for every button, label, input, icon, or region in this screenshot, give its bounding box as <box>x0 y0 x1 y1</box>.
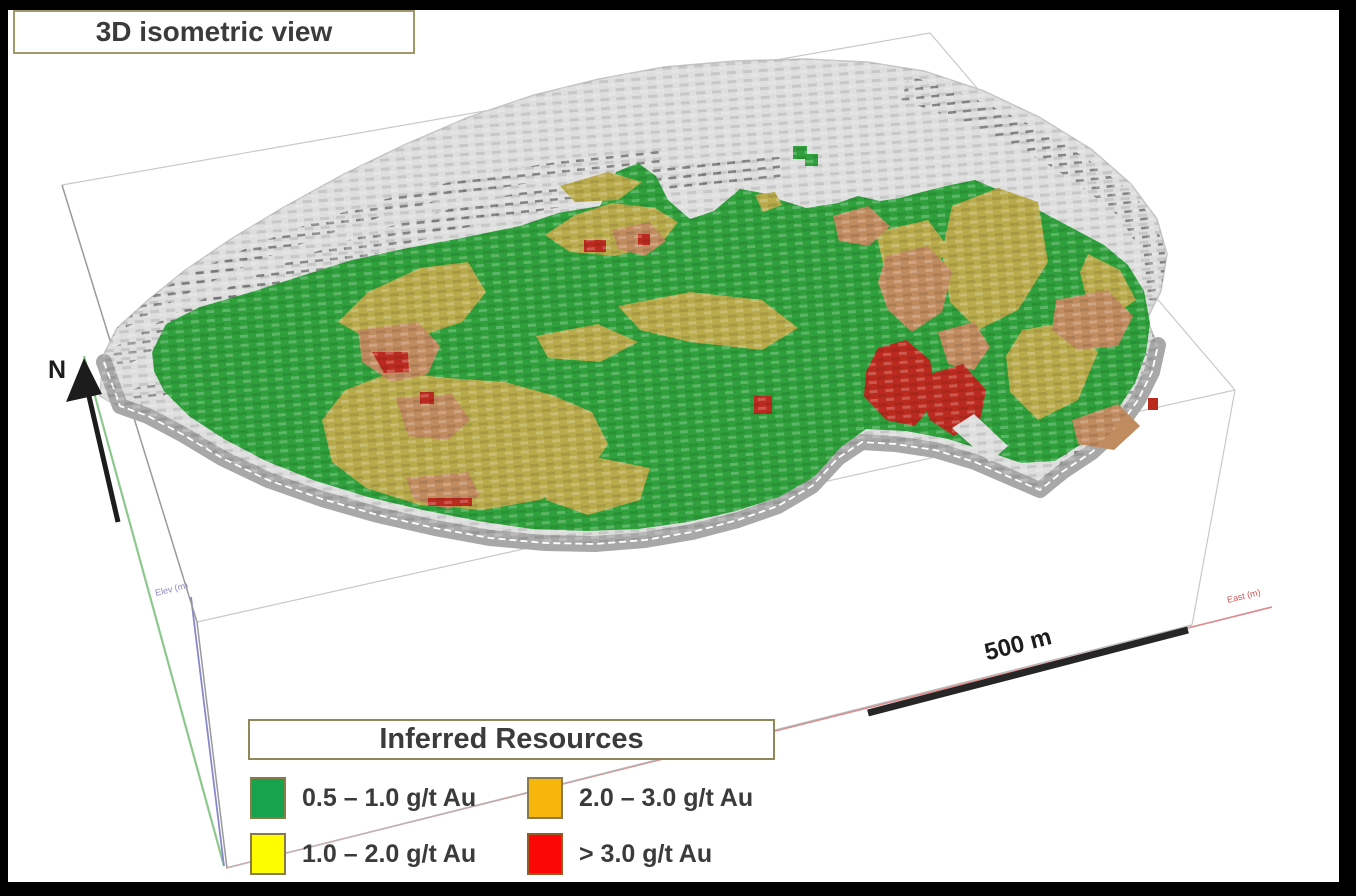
legend-swatch-yellow <box>250 833 286 875</box>
view-title: 3D isometric view <box>96 16 333 48</box>
legend-title: Inferred Resources <box>379 723 643 756</box>
legend-label: 2.0 – 3.0 g/t Au <box>579 784 753 813</box>
legend-swatch-green <box>250 777 286 819</box>
figure-root: { "title_box": { "label": "3D isometric … <box>0 0 1356 896</box>
view-title-box: 3D isometric view <box>13 10 415 54</box>
legend-swatch-red <box>527 833 563 875</box>
legend-item: 0.5 – 1.0 g/t Au <box>250 777 476 819</box>
legend-item: > 3.0 g/t Au <box>527 833 712 875</box>
legend-title-box: Inferred Resources <box>248 719 775 760</box>
legend-label: > 3.0 g/t Au <box>579 840 712 869</box>
legend-item: 2.0 – 3.0 g/t Au <box>527 777 753 819</box>
legend-label: 0.5 – 1.0 g/t Au <box>302 784 476 813</box>
north-label: N <box>48 356 66 384</box>
legend-label: 1.0 – 2.0 g/t Au <box>302 840 476 869</box>
legend-item: 1.0 – 2.0 g/t Au <box>250 833 476 875</box>
legend-swatch-orange <box>527 777 563 819</box>
scene-canvas: Elev (m) East (m) <box>0 0 1356 896</box>
